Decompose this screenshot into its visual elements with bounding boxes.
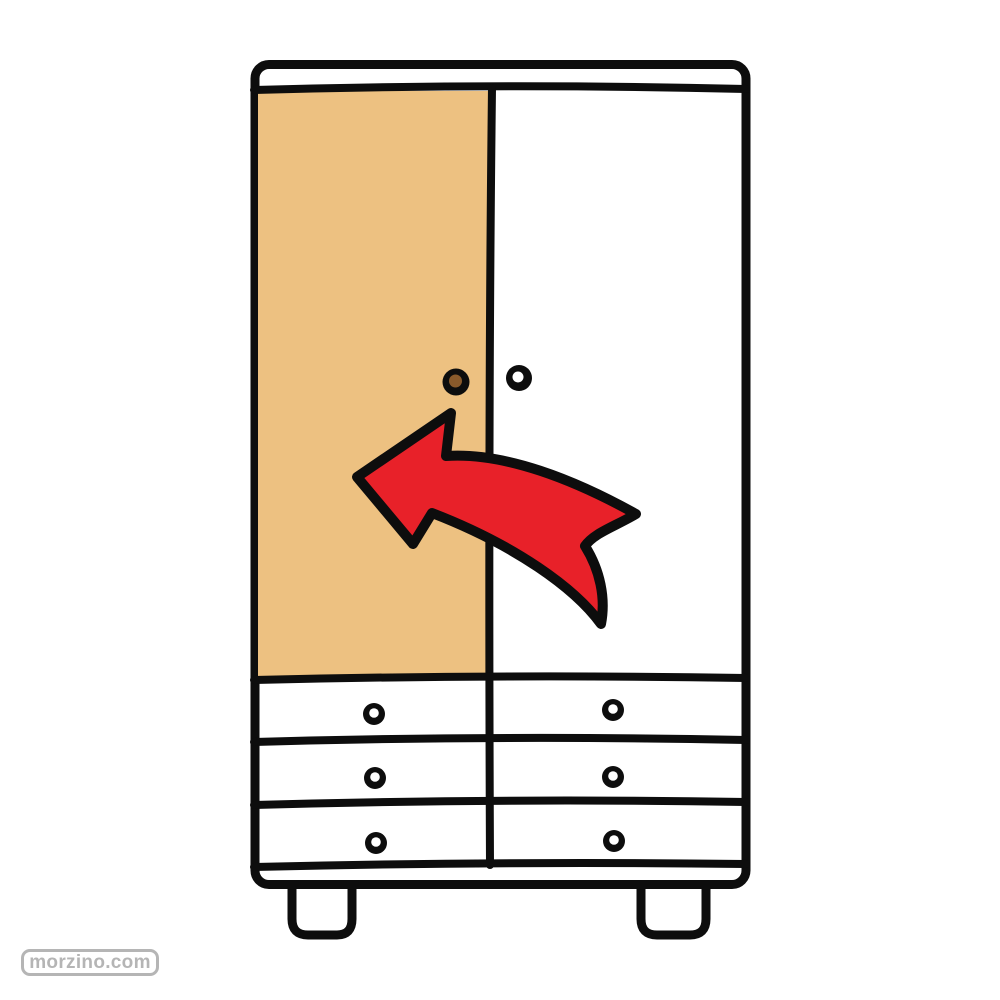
drawer-knob-center	[608, 771, 618, 781]
watermark-text: morzino.com	[29, 953, 151, 972]
watermark-badge: morzino.com	[21, 949, 159, 976]
drawer-knob-row1-right	[602, 699, 624, 721]
drawer-knob-center	[609, 835, 619, 845]
right-door-knob	[506, 365, 532, 391]
drawer-divider-line-1	[254, 738, 746, 742]
drawer-knob-row2-right	[602, 766, 624, 788]
left-door-knob-center	[449, 375, 462, 388]
right-door-knob-center	[513, 372, 524, 383]
drawer-knob-row2-left	[364, 767, 386, 789]
drawer-knob-center	[370, 772, 380, 782]
wardrobe-illustration	[0, 0, 1000, 1000]
drawer-knob-row3-left	[365, 832, 387, 854]
illustration-canvas: morzino.com	[0, 0, 1000, 1000]
drawer-bottom-line	[254, 863, 746, 867]
left-door-knob	[443, 369, 470, 396]
drawer-knob-center	[608, 704, 618, 714]
drawer-knob-row3-right	[603, 830, 625, 852]
drawer-divider-line-2	[254, 801, 746, 805]
door-bottom-line	[254, 676, 746, 680]
drawer-knob-center	[371, 837, 381, 847]
drawer-knob-row1-left	[363, 703, 385, 725]
top-panel-line	[254, 86, 746, 90]
drawer-knob-center	[369, 708, 379, 718]
